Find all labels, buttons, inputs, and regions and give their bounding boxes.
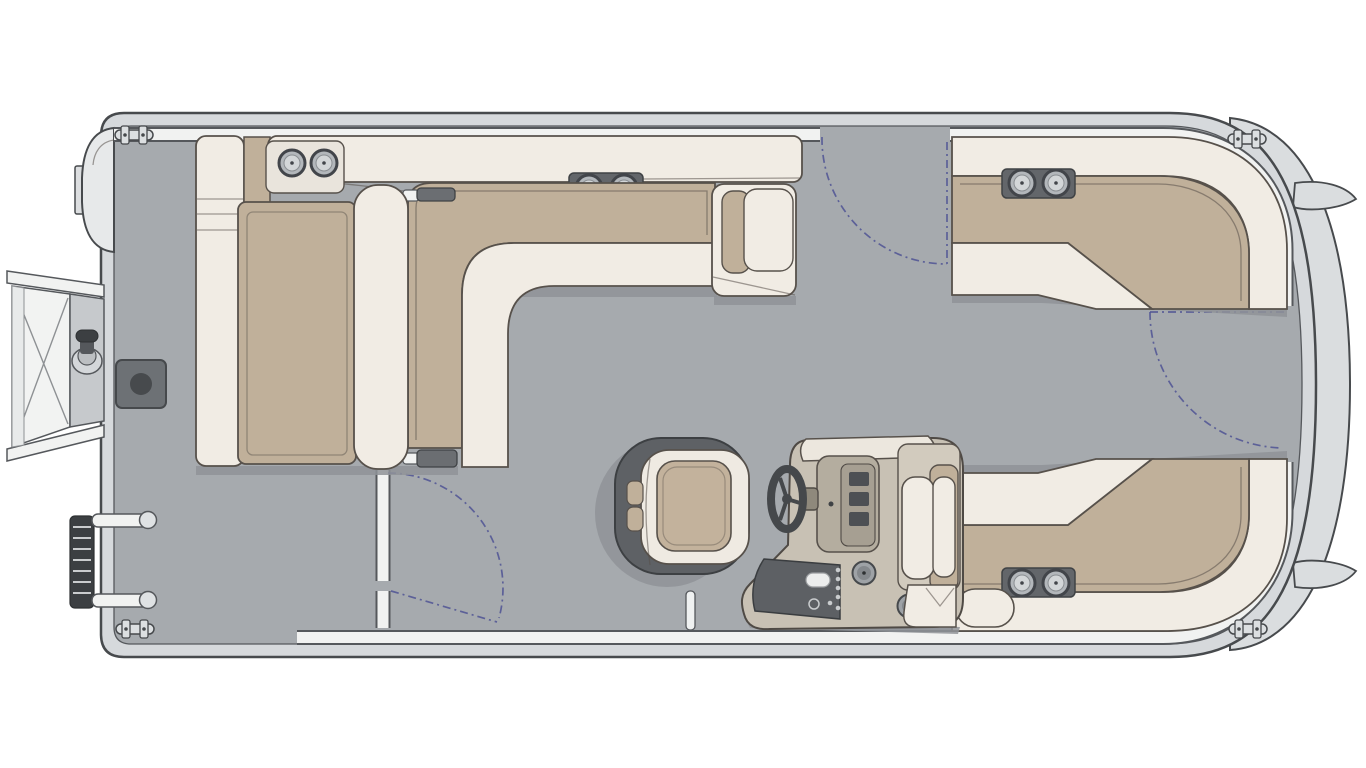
bow-port-speakers — [1002, 169, 1075, 198]
chair-center-cushion — [657, 461, 731, 551]
lounger-shadow — [196, 466, 458, 475]
ladder-ring-upper — [140, 512, 157, 529]
armrest-shadow — [714, 296, 796, 305]
aft-facing-lounger — [238, 185, 408, 469]
pedestal-seat-base — [116, 360, 166, 408]
bow-starboard-speakers — [1002, 568, 1075, 597]
outboard-motor — [75, 128, 114, 252]
gauge-screen — [849, 492, 869, 506]
stern-boarding-door — [7, 271, 104, 461]
motor-cowling — [82, 128, 114, 252]
speaker-icon — [1009, 570, 1035, 596]
lounger-tan-cushion — [238, 202, 356, 464]
gauge-screen — [849, 512, 869, 526]
walkthrough-cap-bottom — [417, 450, 457, 467]
port-backrest-strip — [268, 136, 802, 182]
walkthrough-cap-top — [417, 188, 455, 201]
instrument-cluster — [817, 456, 879, 552]
chaise-wedge — [904, 585, 956, 627]
lounger-front-bolster — [196, 136, 244, 466]
chair-side-pad — [627, 507, 643, 531]
door-edge-bar — [12, 286, 24, 447]
captains-chair — [595, 438, 749, 587]
port-bow-corner-lounge — [952, 137, 1287, 317]
pedestal-mount-knob-icon — [72, 330, 102, 374]
pontoon-floorplan-canvas: Pontoon boat floor plan (top view) Overh… — [0, 0, 1366, 768]
cup-holder-icon — [311, 150, 337, 176]
chaise-bolster-pill — [956, 589, 1014, 627]
speaker-icon — [1043, 170, 1069, 196]
ignition-switch — [806, 573, 830, 587]
speaker-icon — [1009, 170, 1035, 196]
cup-holder-icon — [279, 150, 305, 176]
speaker-icon — [1043, 570, 1069, 596]
starboard-bow-corner-lounge — [952, 451, 1287, 631]
armrest-end-table — [712, 184, 796, 296]
chair-side-pad — [627, 481, 643, 505]
shared-backrest-pill — [354, 185, 408, 469]
switch-panel — [753, 559, 840, 619]
gauge-screen — [849, 472, 869, 486]
chaise-backrest — [902, 465, 958, 627]
ladder-ring-lower — [140, 592, 157, 609]
lounge-shadow — [510, 287, 717, 297]
ladder-rail — [70, 516, 94, 608]
bow-fin-bottom-icon — [1293, 561, 1356, 588]
bow-fin-top-icon — [1293, 182, 1356, 209]
bow-counter-cup-holders — [266, 141, 344, 193]
pedestal-post — [686, 591, 695, 630]
